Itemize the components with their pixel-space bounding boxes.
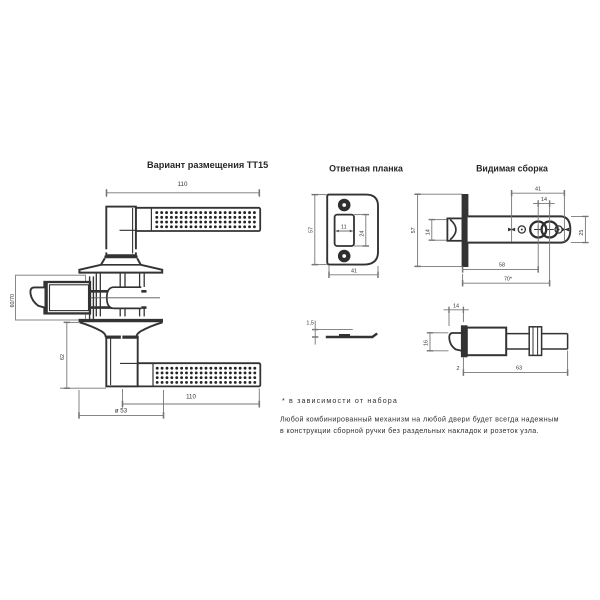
svg-text:ø 53: ø 53	[115, 408, 128, 415]
svg-text:Вариант размещения ТТ15: Вариант размещения ТТ15	[147, 160, 268, 170]
svg-text:16: 16	[424, 340, 430, 346]
svg-text:110: 110	[178, 181, 188, 188]
svg-text:63: 63	[516, 366, 522, 372]
svg-text:58: 58	[499, 262, 505, 268]
svg-text:Любой комбинированный механизм: Любой комбинированный механизм на любой …	[280, 416, 559, 424]
svg-text:* в зависимости от набора: * в зависимости от набора	[282, 397, 398, 405]
svg-text:14: 14	[425, 229, 431, 235]
svg-text:57: 57	[309, 227, 315, 233]
svg-text:1,5: 1,5	[306, 321, 314, 327]
svg-text:Ответная планка: Ответная планка	[329, 164, 403, 174]
svg-text:11: 11	[341, 225, 347, 231]
svg-text:2: 2	[457, 366, 460, 372]
svg-text:57: 57	[411, 227, 417, 233]
svg-text:60/70: 60/70	[10, 294, 16, 308]
svg-text:14: 14	[541, 197, 547, 203]
svg-text:25: 25	[579, 230, 585, 236]
svg-text:41: 41	[351, 268, 357, 274]
svg-text:14: 14	[453, 303, 459, 309]
svg-text:62: 62	[60, 354, 66, 360]
svg-text:в конструкции сборной ручки бе: в конструкции сборной ручки без раздельн…	[280, 427, 539, 435]
svg-text:110: 110	[186, 394, 196, 401]
svg-text:41: 41	[535, 187, 541, 193]
svg-text:Видимая сборка: Видимая сборка	[476, 164, 548, 174]
svg-text:70*: 70*	[504, 276, 513, 282]
svg-text:24: 24	[359, 231, 365, 237]
